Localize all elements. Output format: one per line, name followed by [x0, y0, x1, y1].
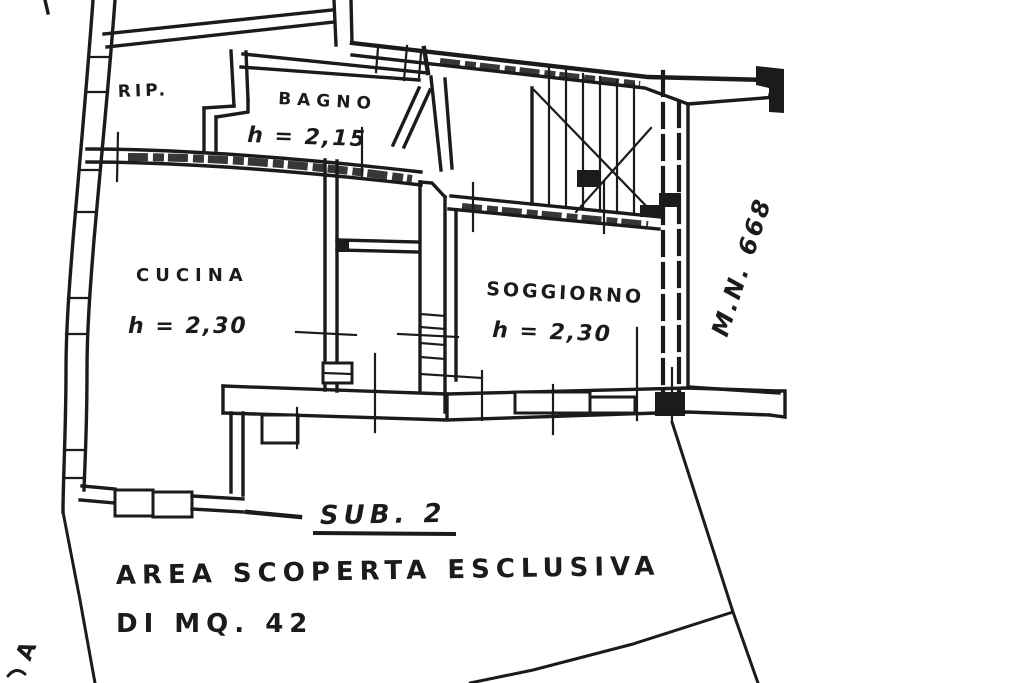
- room-label-rip: RIP.: [117, 80, 169, 102]
- partial-letter-mark: [8, 670, 25, 676]
- map-number-label: M.N. 668: [706, 194, 777, 340]
- room-label-bagno: BAGNO: [278, 89, 378, 114]
- adjacent-building: [688, 89, 779, 393]
- subunit-label-group: SUB. 2: [313, 499, 456, 534]
- area-text-line2: DI MQ. 42: [116, 609, 313, 639]
- room-height-soggiorno: h = 2,30: [492, 318, 613, 347]
- south-wall: [223, 363, 785, 443]
- edge-letter: A: [11, 638, 42, 664]
- room-height-cucina: h = 2,30: [128, 314, 248, 339]
- subunit-label: SUB. 2: [320, 499, 447, 531]
- building-top-wall: [352, 43, 784, 170]
- hall-wall: [87, 149, 421, 185]
- room-label-cucina: CUCINA: [136, 265, 249, 286]
- room-height-bagno: h = 2,15: [247, 123, 368, 152]
- area-text-line1: AREA SCOPERTA ESCLUSIVA: [116, 551, 661, 591]
- cucina-window-pane: [153, 492, 192, 517]
- staircase: [532, 67, 662, 217]
- cucina-window-pane: [115, 490, 153, 516]
- left-outer-wall: [45, 0, 115, 512]
- room-label-soggiorno: SOGGIORNO: [486, 278, 645, 308]
- floor-plan-drawing: RIP. BAGNO h = 2,15 CUCINA h = 2,30 SOGG…: [0, 0, 1024, 683]
- floor-plan-sheet: RIP. BAGNO h = 2,15 CUCINA h = 2,30 SOGG…: [0, 0, 1024, 683]
- subunit-underline: [313, 533, 456, 534]
- party-wall: [655, 72, 685, 416]
- top-left-room-walls: [104, 0, 352, 47]
